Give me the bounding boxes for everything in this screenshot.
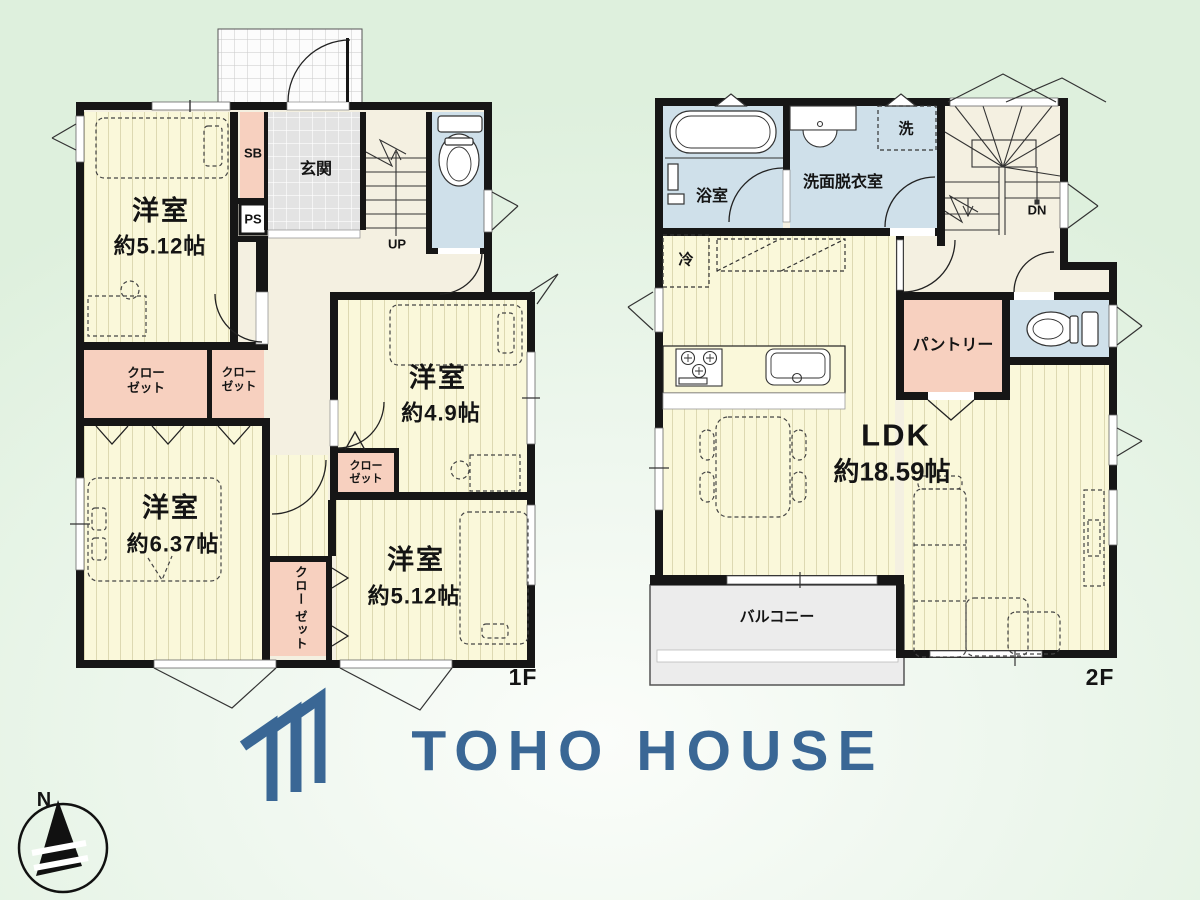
bath-label: 浴室 [696,188,728,206]
ldk-name: LDK [861,419,931,454]
floorplan-page: 洋室 約5.12帖 洋室 約4.9帖 洋室 約6.37帖 洋室 約5.12帖 玄… [0,0,1200,900]
closet-a-line1: クロー [127,366,165,381]
closet-c-line2: ゼット [350,473,383,486]
closet-d-line2: ゼット [293,610,307,651]
room2-area: 約4.9帖 [401,402,481,427]
room1-name: 洋室 [132,196,190,226]
compass-icon [19,800,107,892]
plan-2f [628,74,1142,685]
toho-house-logo-mark [243,698,320,801]
room4-area: 約5.12帖 [368,585,461,610]
washer-label: 洗 [898,122,913,139]
toilet-icon-1f [438,116,482,186]
closet-a-label: クロー ゼット [127,366,165,396]
stove-icon [676,349,722,386]
floor2-tag: 2F [1086,665,1115,691]
closet-c-label: クロー ゼット [350,460,383,486]
room3-name: 洋室 [142,493,200,523]
corridor-strip [270,455,328,556]
pipe-space-label: PS [244,213,261,228]
entrance-label: 玄関 [300,161,332,179]
closet-a-line2: ゼット [127,381,165,396]
ldk-floor-right [904,398,1109,650]
compass-north-label: N [37,789,51,811]
closet-b-label: クロー ゼット [222,367,257,395]
fridge-label: 冷 [678,253,693,270]
room1-area: 約5.12帖 [114,235,207,260]
bedroom4-floor [336,500,527,660]
ldk-area: 約18.59帖 [833,457,950,486]
kitchen-counter [663,346,845,409]
balcony-label: バルコニー [740,610,815,627]
room3-area: 約6.37帖 [127,533,220,558]
toho-house-logo-text: TOHO HOUSE [411,720,884,784]
ldk-floor-mid [1010,365,1109,403]
kitchen-sink-icon [766,349,830,385]
entrance-step [268,230,360,238]
closet-d-label: クロー ゼット [291,565,307,650]
stairs-down-label: DN [1028,204,1047,219]
shoe-box-label: SB [244,147,262,162]
floor1-tag: 1F [509,665,538,691]
pantry-label: パントリー [913,337,994,355]
washroom-label: 洗面脱衣室 [803,174,883,192]
stairs-up-label: UP [388,238,406,253]
room4-name: 洋室 [387,545,445,575]
closet-b-line1: クロー [222,367,257,381]
toilet-icon-2f [1027,312,1098,346]
closet-b-line2: ゼット [222,381,257,395]
balcony-structure [650,585,904,685]
bedroom1-floor [84,112,230,342]
closet-c-line1: クロー [350,460,383,473]
room2-name: 洋室 [409,363,467,393]
closet-d-line1: クロー [293,565,307,606]
